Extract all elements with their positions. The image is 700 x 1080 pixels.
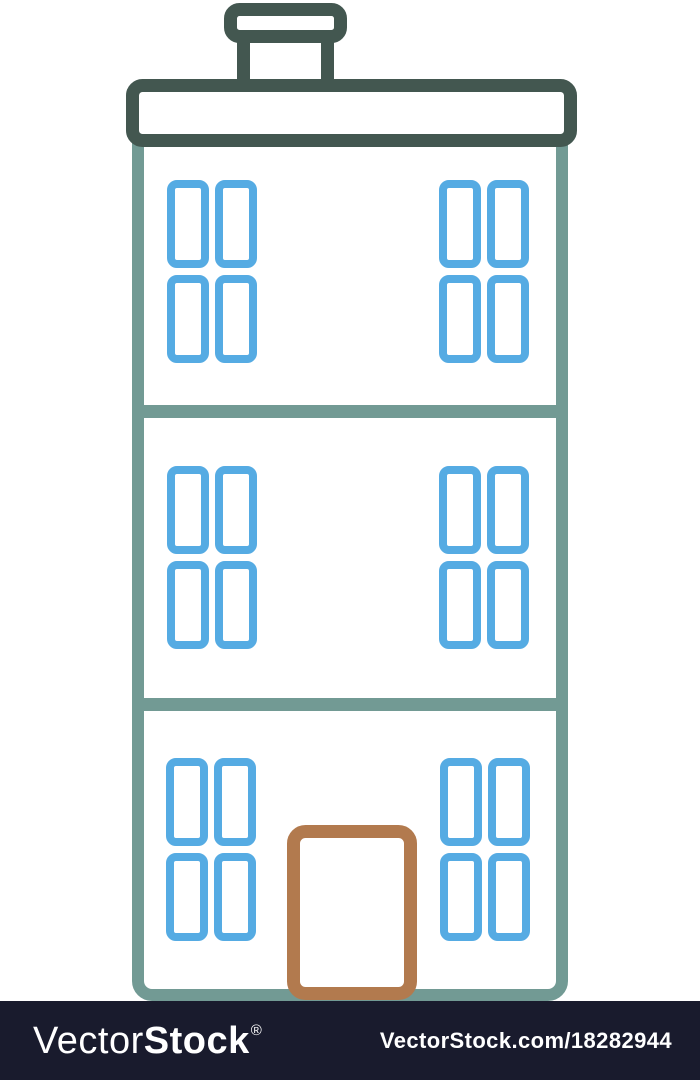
window-pane bbox=[171, 470, 205, 550]
window-pane bbox=[491, 470, 525, 550]
window-pane bbox=[170, 762, 204, 842]
window-pane bbox=[218, 857, 252, 937]
floor-divider-1 bbox=[138, 405, 562, 418]
watermark-url: VectorStock.com/18282944 bbox=[380, 1028, 672, 1054]
window-pane bbox=[491, 184, 525, 264]
window-pane bbox=[219, 470, 253, 550]
window-pane bbox=[492, 857, 526, 937]
logo-text-light: Vector bbox=[33, 1020, 144, 1062]
roof-band bbox=[133, 86, 571, 141]
building-illustration bbox=[0, 0, 700, 1080]
registered-mark: ® bbox=[251, 1022, 263, 1039]
window-pane bbox=[171, 279, 205, 359]
window-pane bbox=[491, 279, 525, 359]
window-pane bbox=[171, 184, 205, 264]
window-pane bbox=[219, 184, 253, 264]
watermark-bar: VectorStock® VectorStock.com/18282944 bbox=[0, 1001, 700, 1080]
window-pane bbox=[443, 184, 477, 264]
window-pane bbox=[218, 762, 252, 842]
door bbox=[294, 832, 411, 994]
window-pane bbox=[444, 762, 478, 842]
window-pane bbox=[444, 857, 478, 937]
window-pane bbox=[492, 762, 526, 842]
vectorstock-logo: VectorStock® bbox=[33, 1022, 262, 1060]
window-pane bbox=[443, 470, 477, 550]
window-pane bbox=[219, 565, 253, 645]
window-pane bbox=[170, 857, 204, 937]
logo-text-bold: Stock bbox=[144, 1020, 250, 1062]
window-pane bbox=[219, 279, 253, 359]
floor-divider-2 bbox=[138, 698, 562, 711]
window-pane bbox=[491, 565, 525, 645]
window-pane bbox=[443, 279, 477, 359]
window-pane bbox=[443, 565, 477, 645]
stock-image-canvas: VectorStock® VectorStock.com/18282944 bbox=[0, 0, 700, 1080]
chimney-cap bbox=[231, 10, 341, 37]
window-pane bbox=[171, 565, 205, 645]
